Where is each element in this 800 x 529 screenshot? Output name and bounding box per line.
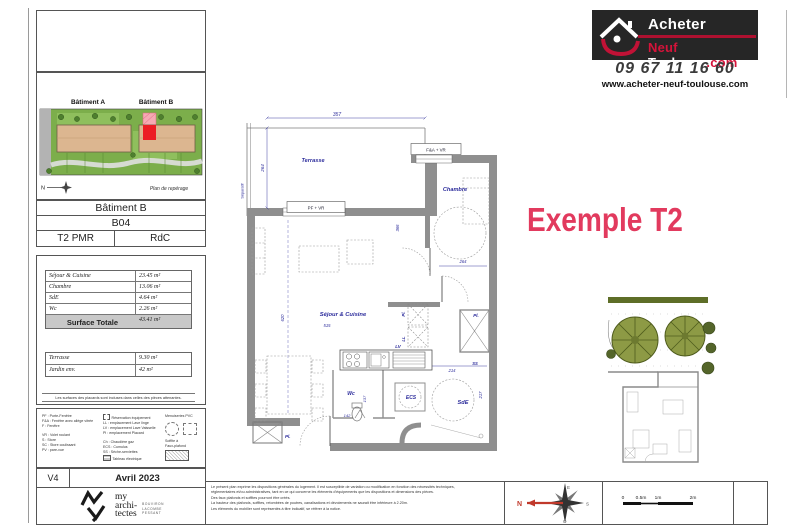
table-row: Séjour & Cuisine 23.45 m²	[46, 271, 191, 282]
room-label: Chambre	[46, 282, 135, 292]
label-placard: Pl.	[473, 313, 479, 318]
room-label: Séjour & Cuisine	[46, 271, 135, 281]
shower-line	[431, 425, 481, 438]
brand-phone-number: 09 67 11 16 60	[592, 60, 758, 78]
window-label-fa-vr: F&A + VR	[426, 148, 445, 153]
room-area: 23.45 m²	[135, 271, 191, 281]
exterior-surfaces-table: Terrasse 9.30 m² Jardin env. 42 m²	[45, 352, 192, 377]
unit-type: T2 PMR	[37, 231, 115, 246]
legend-box: PF : Porte-Fenêtre F&A : Fenêtre avec al…	[36, 408, 206, 468]
room-label: Terrasse	[46, 353, 135, 364]
label-entry-placard: Pl.	[285, 434, 291, 439]
version-code: V4	[37, 469, 70, 487]
window-label-pf-vr: PF + VR	[308, 206, 325, 211]
room-label: SdE	[46, 293, 135, 303]
table-row: Terrasse 9.30 m²	[46, 353, 191, 365]
room-label-chambre: Chambre	[443, 187, 467, 193]
room-label-sejour: Séjour & Cuisine	[320, 312, 367, 318]
legend-soffite-label2: Faux-plafond	[165, 444, 205, 449]
siteplan-caption: Plan de repérage	[150, 186, 189, 192]
separatif-label: Séparatif	[241, 182, 245, 198]
brand-word-acheter: Acheter	[648, 16, 706, 33]
total-row: Surface Totale 43.41 m²	[46, 315, 191, 328]
title-block-empty-box	[36, 10, 206, 72]
site-plan-map: Bâtiment A Bâtiment B N Plan	[37, 73, 205, 199]
north-label: N	[41, 186, 45, 192]
unit-type-row: T2 PMR RdC	[36, 230, 206, 247]
scale-bar-box: 0 0.5m 1m 2m	[602, 481, 734, 525]
surfaces-table: Séjour & Cuisine 23.45 m² Chambre 13.06 …	[45, 270, 192, 329]
compass-e: E	[567, 485, 570, 490]
siteplan-label-batiment-a: Bâtiment A	[71, 99, 105, 106]
scale-bar: 0 0.5m 1m 2m	[603, 482, 733, 524]
table-row: Wc 2.26 m²	[46, 304, 191, 315]
room-area: 13.06 m²	[135, 282, 191, 292]
legend-column-equipment: Réservation équipement LL : emplacement …	[103, 414, 163, 462]
dining-table	[267, 356, 311, 414]
mini-apartment-furniture	[625, 392, 691, 462]
compass-box: N E S O	[504, 481, 603, 525]
hedge	[608, 297, 708, 303]
legal-line: Les éléments du mobilier sont représenté…	[211, 507, 499, 512]
kitchen-counter	[340, 350, 432, 370]
armchair	[347, 240, 373, 264]
window-pf-vr: PF + VR	[283, 202, 345, 217]
hatched-soffite-symbol	[165, 450, 189, 461]
dim-214: 214	[448, 368, 457, 373]
exterior-walls	[247, 155, 497, 451]
bed	[463, 178, 489, 224]
room-label: Jardin env.	[46, 365, 135, 377]
sde-curved-wall	[402, 425, 421, 443]
house-icon	[595, 13, 643, 57]
title-block-small-box	[733, 481, 768, 525]
brand-red-bar	[638, 35, 756, 38]
garden-mini-plan	[603, 292, 738, 480]
brand-logo: Acheter Neuf Toulouse.com	[592, 10, 758, 60]
example-type-title: Exemple T2	[527, 201, 683, 239]
scale-0: 0	[622, 495, 625, 501]
total-area: 43.41 m²	[136, 315, 191, 328]
version-row: V4 Avril 2023	[36, 468, 206, 488]
dim-357: 357	[333, 112, 342, 118]
room-area: 42 m²	[135, 365, 191, 377]
coffee-table	[299, 246, 339, 272]
dim-620: 620	[280, 314, 285, 322]
doors	[300, 248, 468, 446]
tree-2	[665, 316, 705, 356]
scale-1: 1m	[655, 495, 662, 501]
dim-515: 515	[324, 323, 332, 328]
label-pl-reservation: Pl.	[401, 311, 406, 316]
legend-shape-symbols	[165, 422, 205, 436]
legend-item: Réservation équipement	[103, 414, 163, 421]
architect-wordmark: my archi- tectes	[115, 493, 137, 519]
pmr-turning-circle-chambre	[434, 207, 486, 259]
scale-05: 0.5m	[636, 495, 647, 501]
legend-item: PV : pare-vue	[42, 448, 102, 453]
room-label-terrasse: Terrasse	[301, 158, 324, 164]
table-row: SdE 4.64 m²	[46, 293, 191, 304]
sheet-right-edge	[786, 10, 787, 98]
compass-o: O	[563, 519, 567, 524]
room-label-wc: Wc	[347, 391, 355, 397]
dim-366: 366	[395, 224, 400, 232]
total-label: Surface Totale	[46, 315, 136, 328]
label-ss: SS	[472, 361, 478, 366]
my-architectes-monogram-icon	[78, 490, 110, 522]
surfaces-box: Séjour & Cuisine 23.45 m² Chambre 13.06 …	[36, 255, 206, 405]
wordmark-line: tectes	[115, 510, 137, 519]
toilet	[352, 403, 362, 421]
legend-column-openings: PF : Porte-Fenêtre F&A : Fenêtre avec al…	[42, 414, 102, 453]
legal-notice-box: Le présent plan exprime les dispositions…	[205, 481, 505, 525]
table-row: Chambre 13.06 m²	[46, 282, 191, 293]
legend-item: Tableau électrique	[103, 455, 163, 462]
label-ecs: ECS	[406, 395, 417, 401]
dim-264-chambre: 264	[459, 259, 468, 264]
highlight-unit-red	[143, 125, 156, 140]
label-ll: LL	[401, 336, 406, 342]
surfaces-note: Les surfaces des placards sont incluses …	[42, 393, 195, 402]
architect-names: BOUVIRON LACOMBE PESSANT	[142, 502, 164, 516]
scale-2: 2m	[690, 495, 697, 501]
compass-s: S	[586, 502, 589, 507]
architect-logo-box: my archi- tectes BOUVIRON LACOMBE PESSAN…	[36, 487, 206, 525]
dim-137: 137	[362, 395, 367, 402]
siteplan-road	[40, 109, 51, 175]
compass-n: N	[517, 501, 522, 508]
site-plan-box: Bâtiment A Bâtiment B N Plan	[36, 72, 206, 200]
legend-title: Menuiseries PVC	[165, 414, 205, 419]
floor-plan: PF + VR F&A + VR	[235, 98, 525, 473]
architect-name: PESSANT	[142, 511, 164, 516]
room-area: 4.64 m²	[135, 293, 191, 303]
tree-1	[612, 317, 658, 363]
siteplan-path	[51, 160, 202, 165]
sheet-left-edge	[28, 8, 29, 523]
siteplan-label-batiment-b: Bâtiment B	[139, 99, 174, 106]
dashed-rect-symbol	[183, 423, 197, 435]
legend-column-menuiseries: Menuiseries PVC Soffite à Faux-plafond	[165, 414, 205, 461]
unit-lot-row: B04	[36, 215, 206, 231]
building-a-footprint	[57, 125, 131, 152]
room-label: Wc	[46, 304, 135, 314]
room-label-sde: SdE	[458, 400, 469, 406]
reservation-boxes	[408, 304, 428, 347]
brand-word-neuf: Neuf	[648, 40, 678, 55]
north-arrow: N	[41, 181, 72, 194]
dim-142: 142	[344, 413, 351, 418]
table-row: Jardin env. 42 m²	[46, 365, 191, 377]
room-area: 2.26 m²	[135, 304, 191, 314]
room-area: 9.30 m²	[135, 353, 191, 364]
dashed-circle-symbol	[165, 422, 179, 436]
dim-217: 217	[478, 391, 483, 400]
version-date: Avril 2023	[70, 469, 205, 487]
label-lv: LV	[395, 344, 402, 349]
brand-website: www.acheter-neuf-toulouse.com	[592, 79, 758, 90]
unit-building-row: Bâtiment B	[36, 200, 206, 216]
dim-264-terrasse: 264	[260, 164, 265, 173]
compass-rose: N E S O	[505, 482, 602, 524]
unit-level: RdC	[115, 231, 205, 246]
